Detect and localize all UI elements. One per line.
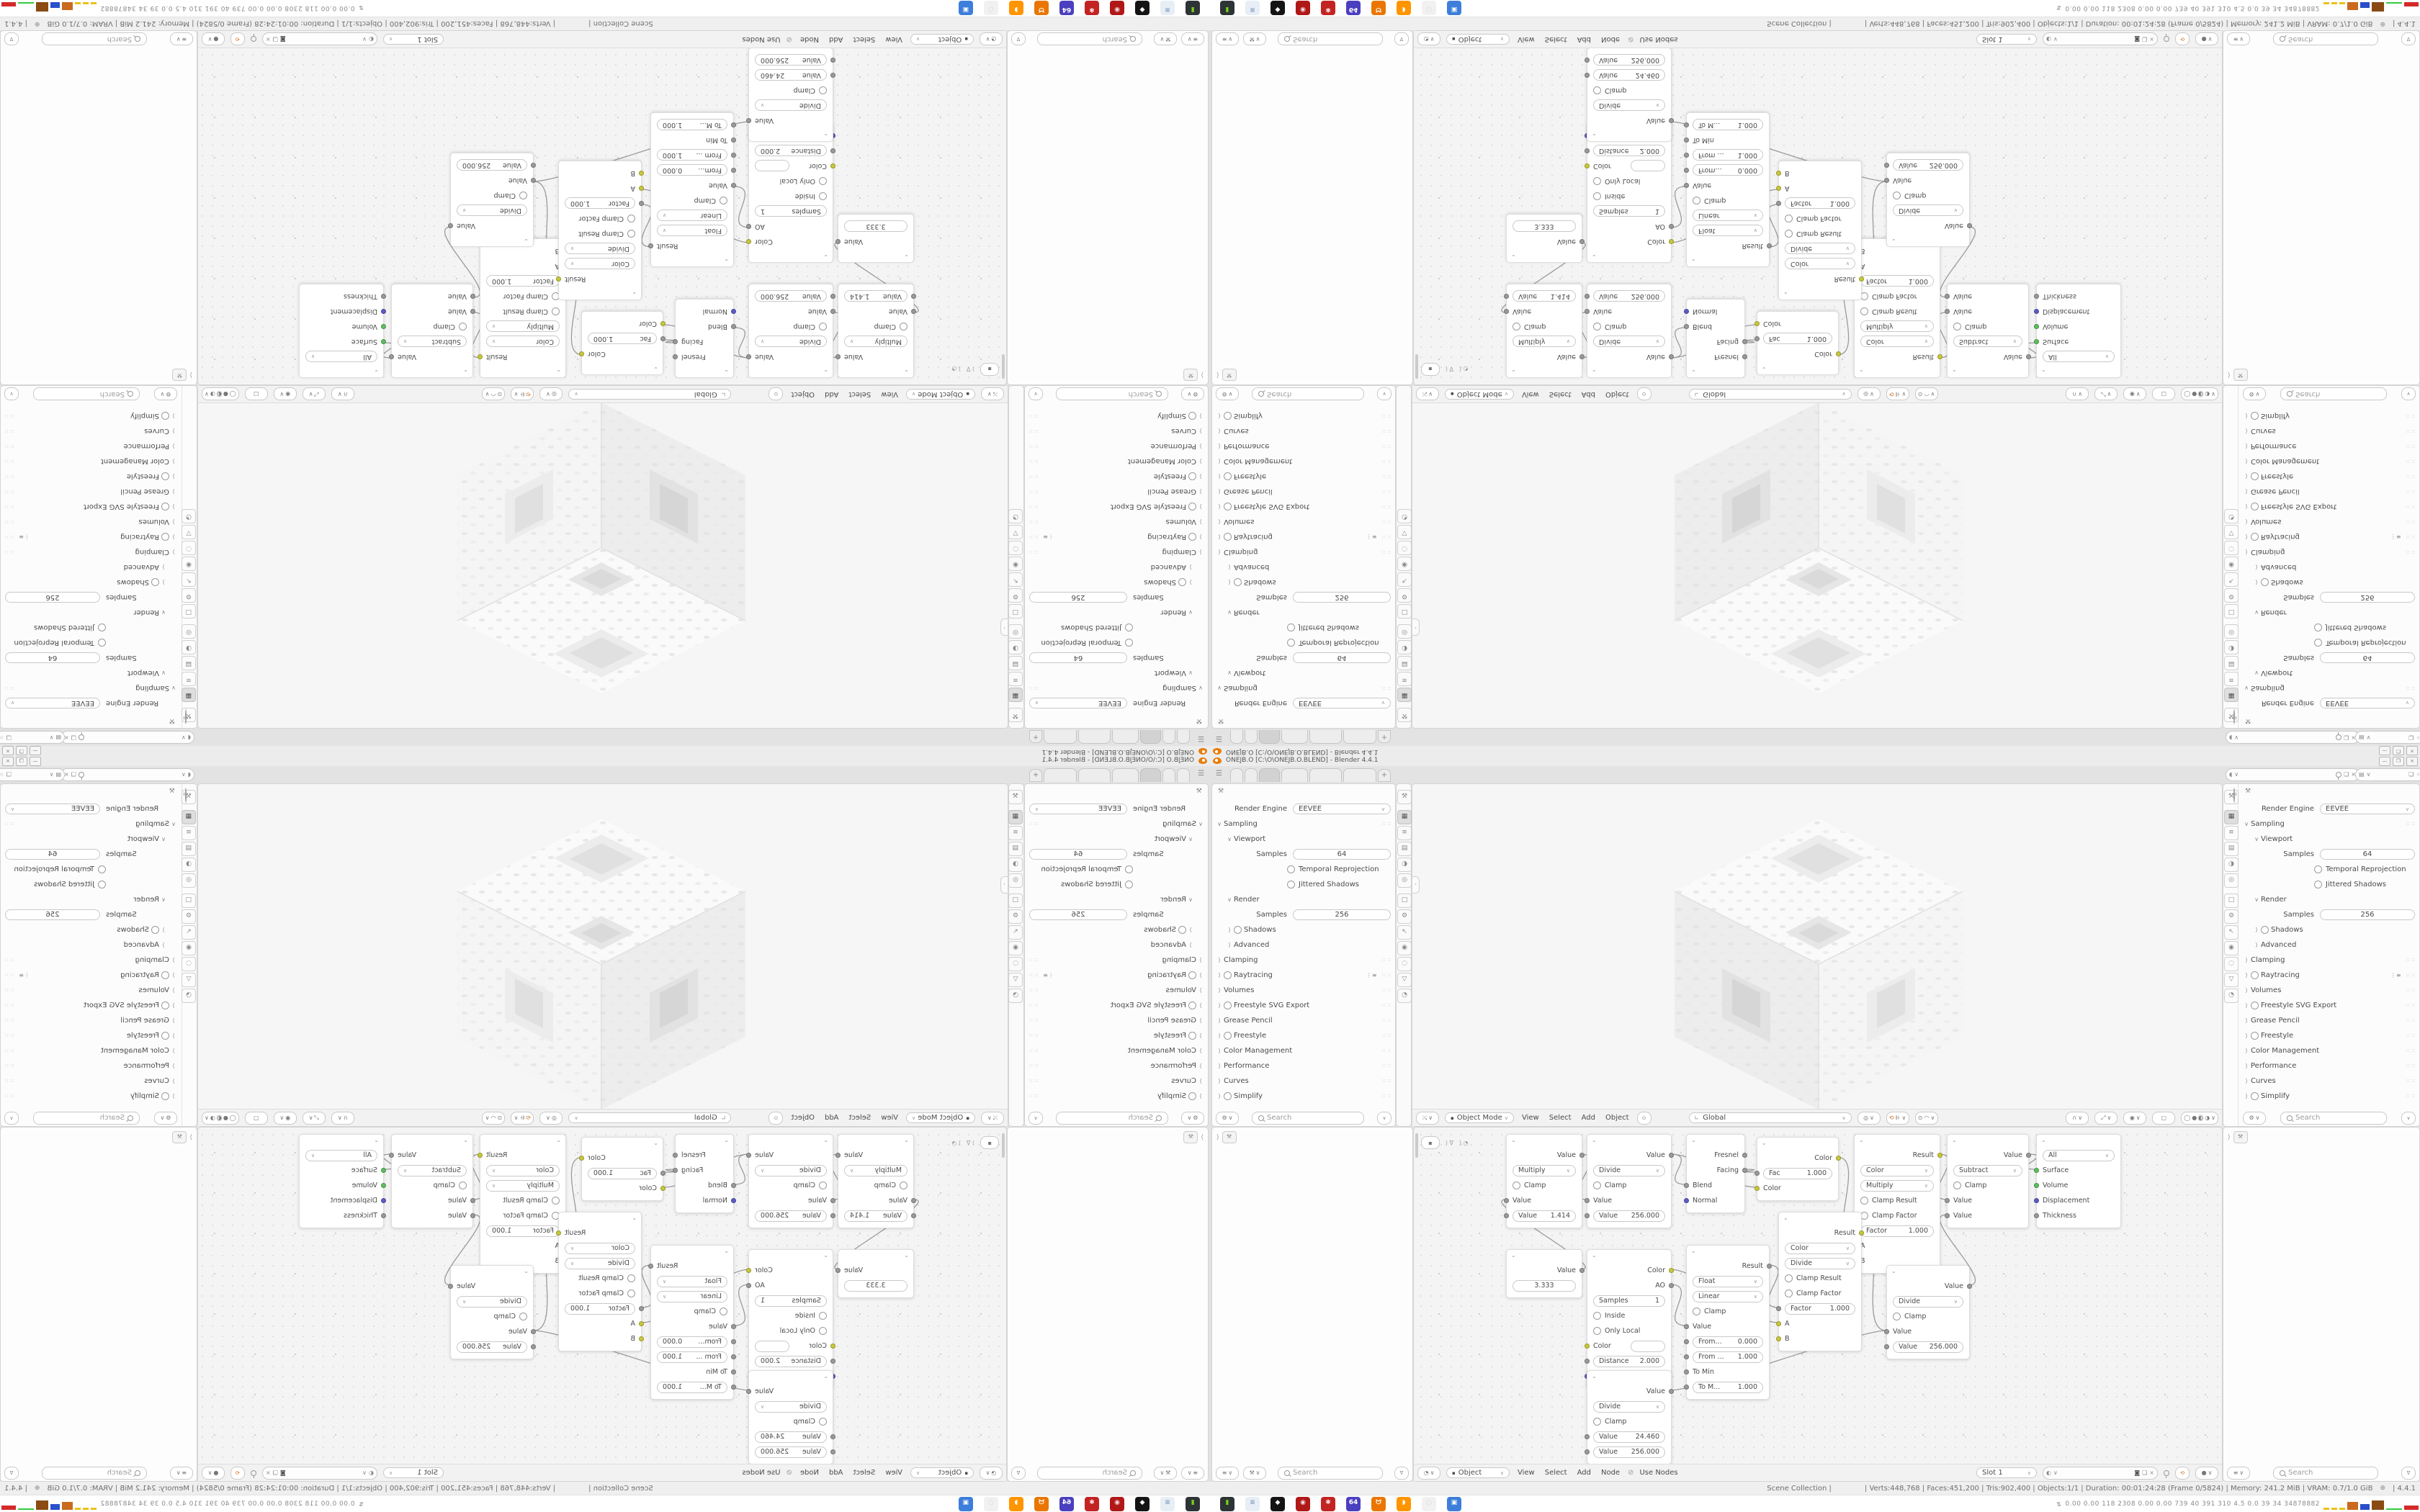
value-field-samples[interactable]: 256 [2320,909,2415,920]
checkbox[interactable] [627,1290,635,1297]
select-subtract[interactable]: Subtract∨ [398,336,467,348]
checkbox[interactable] [459,1182,467,1189]
pin-icon[interactable] [79,772,84,778]
node-map-range[interactable]: ⌄ResultFloat∨Linear∨ClampValueFrom...0.0… [1686,1245,1770,1400]
prop-row-performance[interactable]: ⟩Performance⁙⁙ [1212,438,1392,454]
shading-mode-cluster[interactable]: ◯●◐◑∨ [2181,388,2218,401]
select-all[interactable]: All∨ [2043,351,2115,363]
properties-tab-tool-icon[interactable]: ⚒ [181,708,196,722]
properties-tab-world-icon[interactable]: ◎ [1397,624,1412,639]
display-mode-button[interactable]: ⚒∨ [1154,33,1177,46]
number-field-from-[interactable]: From...0.000 [1693,165,1763,176]
properties-tab-particles-icon[interactable]: ↖ [1008,925,1023,940]
prop-row-color-management[interactable]: ⟩Color Management⁙⁙ [2239,454,2416,469]
checkbox[interactable] [1224,971,1232,979]
prop-row-raytracing[interactable]: ⟩Raytracing⋮≡⁙⁙ [2239,968,2416,983]
properties-tab-render-icon[interactable]: ▦ [2224,810,2238,824]
taskbar-icon-inkscape[interactable]: ◆ [1270,1497,1285,1511]
node-math-divide-3[interactable]: ⌄ValueDivide∨ClampValue24.460Value256.00… [1587,48,1672,142]
select-divide[interactable]: Divide∨ [1593,1165,1665,1176]
node-math-subtract[interactable]: ⌄ValueSubtract∨ClampValueValue [391,1134,473,1228]
prop-row-grease-pencil[interactable]: ⟩Grease Pencil⁙⁙ [1028,484,1208,499]
checkbox[interactable] [1287,624,1295,631]
prop-row-color-management[interactable]: ⟩Color Management⁙⁙ [1028,454,1208,469]
properties-tab-material-icon[interactable]: ◔ [1397,989,1412,1003]
prop-row-raytracing[interactable]: ⟩Raytracing⋮≡⁙⁙ [1212,529,1392,544]
prop-row-curves[interactable]: ⟩Curves⁙⁙ [1212,423,1392,438]
menu-hamburger-icon[interactable]: ☰ [1196,770,1204,778]
checkbox[interactable] [98,881,106,888]
prop-row-samples[interactable]: Samples64 [2239,847,2416,862]
properties-tab-constraints-icon[interactable]: ◌ [1397,541,1412,555]
prop-row-sampling[interactable]: ∨Sampling⁙⁙ [1028,816,1208,832]
prop-row-sampling[interactable]: ∨Sampling⁙⁙ [2239,816,2416,832]
node-value[interactable]: ⌄Value3.333 [1506,1249,1582,1298]
checkbox[interactable] [1593,177,1601,185]
collapse-button[interactable]: ∨ [1028,1112,1043,1125]
node-invert-color[interactable]: ⌄ColorFac1.000Color [581,1137,663,1201]
number-field-value[interactable]: Value24.460 [1593,1431,1665,1443]
menu-node[interactable]: Node [798,35,821,43]
slot-dropdown[interactable]: Slot 1∨ [1976,34,2037,45]
snap-button[interactable]: ⟲⊪∨ [511,388,534,401]
prop-row-freestyle[interactable]: ⟩Freestyle⁙⁙ [1212,469,1392,484]
prop-row-sampling[interactable]: ∨Sampling⁙⁙ [1212,816,1392,832]
node-layer-weight[interactable]: ⌄FresnelFacingBlendNormal [675,299,734,378]
properties-tab-scene-icon[interactable]: ◑ [2224,640,2238,654]
shader-node-editor[interactable]: ▪ ⟩ ∇⟩ ◔ ⌄ValueMultiply∨ClampValueValue1… [197,30,1007,385]
workspace-tab-3[interactable] [1140,730,1161,744]
prop-row-freestyle[interactable]: ⟩Freestyle⁙⁙ [1028,1028,1208,1043]
node-material-output[interactable]: ⌄All∨SurfaceVolumeDisplacementThickness [299,284,384,378]
checkbox[interactable] [900,323,907,330]
node-math-divide-3[interactable]: ⌄ValueDivide∨ClampValue24.460Value256.00… [748,1370,833,1464]
prop-row-shadows[interactable]: ⟩Shadows [1028,575,1208,590]
editor-type-button[interactable]: ⚙∨ [1216,1112,1239,1125]
properties-tab-output-icon[interactable]: ≡ [1397,826,1412,840]
snap-button[interactable]: ⟲⊪∨ [1886,1112,1909,1125]
prop-row-freestyle-svg-export[interactable]: ⟩Freestyle SVG Export⁙⁙ [1212,998,1392,1013]
prop-row-freestyle[interactable]: ⟩Freestyle⁙⁙ [2239,1028,2416,1043]
node-mix-multiply[interactable]: ⌄ResultColor∨Multiply∨Clamp ResultClamp … [480,1134,566,1274]
checkbox[interactable] [819,1312,827,1320]
scene-selector[interactable]: ◖∨ ❏ × [60,731,194,744]
menu-view[interactable]: View [1515,1469,1537,1477]
select-linear[interactable]: Linear∨ [1693,1291,1763,1302]
sidebar-toggle-tab[interactable]: ‹ [1412,618,1420,636]
taskbar-icon-terminal[interactable]: ▮ [1220,1,1234,15]
prop-row-simplify[interactable]: ⟩Simplify⁙⁙ [1028,408,1208,423]
delete-icon[interactable]: × [0,771,4,778]
prop-row-jittered-shadows[interactable]: Jittered Shadows [1028,877,1208,892]
properties-tab-physics-icon[interactable]: ◉ [1397,557,1412,571]
search-input[interactable]: Search [1278,1467,1383,1480]
number-field-factor[interactable]: Factor1.000 [1860,1225,1934,1237]
prop-row-clamping[interactable]: ⟩Clamping⁙⁙ [1212,544,1392,559]
proportional-edit-button[interactable]: ⊙ [768,1112,783,1125]
prop-row-volumes[interactable]: ⟩Volumes⁙⁙ [1212,514,1392,529]
properties-tab-render-icon[interactable]: ▦ [181,810,196,824]
prop-row-simplify[interactable]: ⟩Simplify⁙⁙ [1028,1089,1208,1104]
prop-row-samples[interactable]: Samples64 [2239,650,2416,665]
prop-row-render[interactable]: ∨Render [4,605,181,620]
checkbox[interactable] [1593,192,1601,200]
workspace-tab-5[interactable] [1309,730,1342,744]
prop-row-temporal-reprojection[interactable]: Temporal Reprojection [2239,635,2416,650]
properties-tab-output-icon[interactable]: ≡ [1008,672,1023,686]
minimize-button[interactable]: — [30,746,41,755]
menu-select[interactable]: Select [846,1114,873,1122]
checkbox[interactable] [2314,881,2322,888]
number-field-to-m-[interactable]: To M...1.000 [1693,1382,1763,1393]
prop-row-curves[interactable]: ⟩Curves⁙⁙ [2239,1074,2416,1089]
taskbar-icon-darktable[interactable]: ◉ [1110,1,1124,15]
prop-row-freestyle-svg-export[interactable]: ⟩Freestyle SVG Export⁙⁙ [1212,499,1392,514]
checkbox[interactable] [1224,412,1232,420]
display-mode-button[interactable]: ⚒∨ [1243,33,1266,46]
workspace-tab-6[interactable] [1343,768,1376,782]
node-math-divide[interactable]: ⌄ValueDivide∨ClampValueValue256.000 [748,1134,833,1228]
search-input[interactable]: Search [2280,1112,2387,1125]
prop-row-volumes[interactable]: ⟩Volumes⁙⁙ [4,983,181,998]
gizmo-dropdown[interactable]: ⤢∨ [302,388,326,401]
number-field-value[interactable]: Value256.000 [1593,1210,1665,1222]
menu-select[interactable]: Select [1547,1114,1574,1122]
node-math-divide-2[interactable]: ⌄ValueDivide∨ClampValueValue256.000 [1886,1265,1970,1359]
copy-icon[interactable]: ❏ [273,36,278,43]
node-math-divide-2[interactable]: ⌄ValueDivide∨ClampValueValue256.000 [450,1265,534,1359]
prop-row-curves[interactable]: ⟩Curves⁙⁙ [2239,423,2416,438]
snap-toggle[interactable]: ⟲ [2175,33,2190,46]
prop-row-samples[interactable]: Samples64 [1028,650,1208,665]
taskbar-icon-monitor[interactable]: ▣ [1447,1497,1461,1511]
prop-row-render[interactable]: ∨Render [2239,605,2416,620]
node-math-subtract[interactable]: ⌄ValueSubtract∨ClampValueValue [1947,1134,2029,1228]
checkbox[interactable] [1188,503,1196,510]
properties-tab-output-icon[interactable]: ≡ [181,826,196,840]
checkbox[interactable] [2261,578,2269,586]
select-color[interactable]: Color∨ [1785,1243,1855,1254]
prop-row-render-engine[interactable]: Render EngineEEVEE∨ [1212,696,1392,711]
node-math-divide-3[interactable]: ⌄ValueDivide∨ClampValue24.460Value256.00… [748,48,833,142]
use-nodes-check-icon[interactable]: ⊘ [1628,1470,1633,1477]
workspace-tab-1[interactable] [1230,730,1243,744]
shader-context-dropdown[interactable]: ▪ Object∨ [910,34,974,45]
number-field-distance[interactable]: Distance2.000 [755,1356,827,1367]
shader-node-editor[interactable]: ▪ ⟩ ∇⟩ ◔ ⌄ValueMultiply∨ClampValueValue1… [1413,1127,2223,1482]
value-field-samples[interactable]: 256 [1293,592,1391,603]
properties-tab-physics-icon[interactable]: ◉ [1008,941,1023,955]
scene-name-field[interactable] [86,733,179,742]
properties-tab-scene-icon[interactable]: ◑ [1397,640,1412,654]
transform-orientation-dropdown[interactable]: ∟ Global∨ [1689,389,1852,400]
number-field-value[interactable]: Value256.000 [755,55,827,66]
menu-select[interactable]: Select [846,390,873,398]
view-layer-selector[interactable]: ▤∨ ❏ × [2355,731,2420,744]
select-multiply[interactable]: Multiply∨ [1860,321,1934,333]
menu-view[interactable]: View [1520,390,1541,398]
search-input[interactable]: Search [33,388,140,401]
workspace-tab-4[interactable] [1281,768,1308,782]
overlays-dropdown[interactable]: ◉∨ [274,1112,297,1125]
magnet-snap-toggle[interactable]: ∩∨ [331,1112,354,1125]
editor-type-button[interactable]: ≡∨ [1216,1467,1239,1480]
properties-tab-object-icon[interactable]: □ [1397,894,1412,908]
number-field-value[interactable]: Value256.000 [1593,1446,1665,1458]
number-field-value[interactable]: Value256.000 [1893,160,1963,171]
menu-view[interactable]: View [879,390,900,398]
taskbar-icon-firefox[interactable]: ◗ [1009,1,1023,15]
menu-node[interactable]: Node [1599,1469,1622,1477]
properties-tab-tool-icon[interactable]: ⚒ [1397,790,1412,804]
search-input[interactable]: Search [2273,1467,2378,1480]
shader-context-dropdown[interactable]: ▪ Object∨ [1446,1467,1510,1478]
checkbox[interactable] [98,865,106,873]
checkbox[interactable] [2251,503,2259,510]
properties-tab-modifiers-icon[interactable]: ⚙ [1397,909,1412,924]
properties-tab-render-icon[interactable]: ▦ [1008,810,1023,824]
node-layer-weight[interactable]: ⌄FresnelFacingBlendNormal [1686,299,1745,378]
node-math-multiply[interactable]: ⌄ValueMultiply∨ClampValueValue1.414 [1506,1134,1582,1228]
number-field-value[interactable]: Value256.000 [755,291,827,302]
properties-tab-world-icon[interactable]: ◎ [1008,873,1023,888]
display-mode-button[interactable]: ⚒∨ [1154,1467,1177,1480]
checkbox[interactable] [2251,1092,2259,1100]
properties-tab-object-icon[interactable]: □ [181,894,196,908]
taskbar-icon-inkscape[interactable]: ◆ [1135,1,1149,15]
taskbar-icon-red-gear[interactable]: ✱ [1321,1,1335,15]
snap-button[interactable]: ⟲⊪∨ [511,1112,534,1125]
workspace-tab-4[interactable] [1112,730,1139,744]
workspace-tab-3[interactable] [1140,768,1161,782]
node-ambient-occlusion[interactable]: ⌄ColorAOSamples1InsideOnly LocalColorDis… [748,123,833,263]
checkbox[interactable] [1188,1092,1196,1100]
prop-row-render-engine[interactable]: Render EngineEEVEE∨ [2239,801,2416,816]
properties-tab-render-icon[interactable]: ▦ [1008,688,1023,702]
color-field[interactable] [755,161,789,172]
select-linear[interactable]: Linear∨ [657,210,727,222]
prop-row-freestyle[interactable]: ⟩Freestyle⁙⁙ [4,469,181,484]
select-color[interactable]: Color∨ [486,1165,560,1176]
checkbox[interactable] [161,1002,169,1009]
fake-user-shield-icon[interactable]: ◙ [280,1470,286,1477]
node-ambient-occlusion[interactable]: ⌄ColorAOSamples1InsideOnly LocalColorDis… [1587,1249,1672,1389]
unlink-icon[interactable]: × [2149,1470,2154,1477]
prop-row-advanced[interactable]: ⟩Advanced [1212,559,1392,575]
prop-row-color-management[interactable]: ⟩Color Management⁙⁙ [1212,1043,1392,1058]
prop-row-volumes[interactable]: ⟩Volumes⁙⁙ [1028,514,1208,529]
pivot-point-button[interactable]: ◎∨ [1857,388,1881,401]
copy-icon[interactable]: ❏ [2344,771,2349,778]
checkbox[interactable] [1224,472,1232,480]
properties-tab-object-icon[interactable]: □ [1008,604,1023,618]
number-field-value[interactable]: Value1.414 [1512,291,1576,302]
workspace-tab-5[interactable] [1078,730,1111,744]
editor-type-button[interactable]: ⤯∨ [1416,1112,1439,1125]
number-field-factor[interactable]: Factor1.000 [565,198,635,210]
number-field-samples[interactable]: Samples1 [755,206,827,217]
prop-row-volumes[interactable]: ⟩Volumes⁙⁙ [1028,983,1208,998]
editor-type-button[interactable]: ◔∨ [1417,33,1440,46]
taskbar-icon-floppy-64[interactable]: 64 [1346,1497,1361,1511]
prop-row-curves[interactable]: ⟩Curves⁙⁙ [4,1074,181,1089]
use-nodes-label[interactable]: Use Nodes [742,35,780,43]
expand-arrow-icon[interactable]: ⟩ [1216,372,1219,379]
select-subtract[interactable]: Subtract∨ [1953,336,2022,348]
pin-icon[interactable] [79,734,84,740]
prop-row-advanced[interactable]: ⟩Advanced [1028,937,1208,953]
checkbox[interactable] [819,1182,827,1189]
menu-hamburger-icon[interactable]: ☰ [1216,770,1224,778]
number-field-value[interactable]: Value24.460 [755,70,827,81]
number-field-factor[interactable]: Factor1.000 [1785,1303,1855,1315]
checkbox[interactable] [1953,1182,1961,1189]
properties-tab-data-icon[interactable]: ▽ [2224,525,2238,539]
checkbox[interactable] [1593,86,1601,94]
properties-tab-modifiers-icon[interactable]: ⚙ [2224,909,2238,924]
number-field-value[interactable]: Value256.000 [755,1446,827,1458]
node-math-divide-3[interactable]: ⌄ValueDivide∨ClampValue24.460Value256.00… [1587,1370,1672,1464]
properties-tab-object-icon[interactable]: □ [2224,894,2238,908]
editor-type-button[interactable]: ⤯∨ [981,388,1004,401]
checkbox[interactable] [1512,1182,1520,1189]
taskbar-icon-ghost[interactable]: ○ [1422,1497,1436,1511]
prop-row-temporal-reprojection[interactable]: Temporal Reprojection [1028,635,1208,650]
prop-row-samples[interactable]: Samples256 [4,590,181,605]
checkbox[interactable] [151,926,159,934]
snap-button[interactable]: ⟲⊪∨ [1886,388,1909,401]
taskbar-icon-terminal[interactable]: ▮ [1186,1497,1200,1511]
prop-row-samples[interactable]: Samples64 [1028,847,1208,862]
prop-row-grease-pencil[interactable]: ⟩Grease Pencil⁙⁙ [2239,484,2416,499]
search-input[interactable]: Search [1278,33,1383,46]
select-divide[interactable]: Divide∨ [1785,243,1855,255]
select-divide[interactable]: Divide∨ [1593,1401,1665,1413]
checkbox[interactable] [627,215,635,222]
viewport-3d[interactable]: ‹ [197,783,1008,1127]
prop-row-shadows[interactable]: ⟩Shadows [1212,575,1392,590]
taskbar-icon-firefox[interactable]: ◗ [1397,1497,1411,1511]
value-field-samples[interactable]: 256 [1029,592,1127,603]
value-field-samples[interactable]: 256 [5,909,100,920]
workspace-tab-4[interactable] [1281,730,1308,744]
prop-row-simplify[interactable]: ⟩Simplify⁙⁙ [4,408,181,423]
number-field-value[interactable]: Value24.460 [1593,70,1665,81]
snap-target-dropdown[interactable]: ●∨ [202,1467,225,1480]
expand-arrow-icon[interactable]: ⟩ [2228,372,2231,379]
mode-dropdown[interactable]: ▪ Object Mode∨ [906,1112,975,1123]
value-field[interactable]: 3.333 [1512,1280,1576,1292]
menu-node[interactable]: Node [1599,35,1622,43]
value-field-samples[interactable]: 64 [1293,849,1391,860]
prop-row-raytracing[interactable]: ⟩Raytracing⋮≡⁙⁙ [4,529,181,544]
properties-tab-material-icon[interactable]: ◔ [181,509,196,523]
use-nodes-label[interactable]: Use Nodes [1639,35,1677,43]
number-field-from-[interactable]: From...0.000 [657,1336,727,1348]
node-mix-multiply[interactable]: ⌄ResultColor∨Multiply∨Clamp ResultClamp … [480,238,566,378]
prop-row-performance[interactable]: ⟩Performance⁙⁙ [4,1058,181,1074]
material-name-field[interactable] [288,1469,361,1477]
checkbox[interactable] [1234,926,1242,934]
checkbox[interactable] [900,1182,907,1189]
add-workspace-button[interactable]: + [1378,730,1391,743]
prop-row-viewport[interactable]: ∨Viewport [2239,665,2416,680]
menu-select[interactable]: Select [1547,390,1574,398]
workspace-tab-6[interactable] [1044,730,1077,744]
checkbox[interactable] [1188,412,1196,420]
checkbox[interactable] [1287,881,1295,888]
add-workspace-button[interactable]: + [1378,769,1391,782]
taskbar-icon-firefox[interactable]: ◗ [1397,1,1411,15]
workspace-tab-1[interactable] [1177,768,1190,782]
checkbox[interactable] [1125,624,1133,631]
properties-tab-object-icon[interactable]: □ [2224,604,2238,618]
properties-tab-physics-icon[interactable]: ◉ [2224,941,2238,955]
prop-row-grease-pencil[interactable]: ⟩Grease Pencil⁙⁙ [4,484,181,499]
search-input[interactable]: Search [2273,33,2378,46]
prop-row-clamping[interactable]: ⟩Clamping⁙⁙ [2239,953,2416,968]
pin-icon[interactable] [251,1470,256,1476]
properties-tab-data-icon[interactable]: ▽ [1008,973,1023,987]
editor-type-button[interactable]: ≡∨ [170,1467,193,1480]
render-engine-dropdown[interactable]: EEVEE∨ [2320,804,2415,814]
number-field-value[interactable]: Value1.414 [1512,1210,1576,1222]
copy-icon[interactable]: ❏ [2408,771,2414,778]
prop-row-jittered-shadows[interactable]: Jittered Shadows [4,877,181,892]
search-input[interactable]: Search [1037,1467,1142,1480]
prop-row-viewport[interactable]: ∨Viewport [1028,665,1208,680]
menu-select[interactable]: Select [1543,1469,1569,1477]
minimize-button[interactable]: — [2379,757,2390,766]
properties-tab-tool-icon[interactable]: ⚒ [181,790,196,804]
editor-type-button[interactable]: ⚙∨ [1216,388,1239,401]
properties-tab-physics-icon[interactable]: ◉ [181,557,196,571]
filter-button[interactable]: ∇ [2401,1467,2416,1480]
checkbox[interactable] [1512,323,1520,330]
checkbox[interactable] [720,197,727,204]
taskbar-icon-blender[interactable]: ᗢ [1371,1,1386,15]
taskbar-icon-ghost[interactable]: ○ [984,1,998,15]
shader-node-editor[interactable]: ▪ ⟩ ∇⟩ ◔ ⌄ValueMultiply∨ClampValueValue1… [197,1127,1007,1482]
properties-tab-scene-icon[interactable]: ◑ [181,640,196,654]
prop-row-simplify[interactable]: ⟩Simplify⁙⁙ [4,1089,181,1104]
node-math-divide[interactable]: ⌄ValueDivide∨ClampValueValue256.000 [748,284,833,378]
editor-type-button[interactable]: ⤯∨ [1416,388,1439,401]
prop-row-jittered-shadows[interactable]: Jittered Shadows [2239,620,2416,635]
taskbar-icon-darktable[interactable]: ◉ [1296,1,1310,15]
editor-type-button[interactable]: ≡∨ [1216,33,1239,46]
properties-tab-particles-icon[interactable]: ↖ [1008,572,1023,587]
properties-tab-particles-icon[interactable]: ↖ [1397,572,1412,587]
properties-tab-object-icon[interactable]: □ [1397,604,1412,618]
prop-row-render-engine[interactable]: Render EngineEEVEE∨ [4,801,181,816]
prop-row-color-management[interactable]: ⟩Color Management⁙⁙ [1028,1043,1208,1058]
value-field-samples[interactable]: 64 [5,652,100,663]
gizmo-dropdown[interactable]: ⤢∨ [2094,388,2117,401]
close-button[interactable]: × [2406,746,2418,755]
prop-row-jittered-shadows[interactable]: Jittered Shadows [1212,620,1392,635]
checkbox[interactable] [161,971,169,979]
number-field-factor[interactable]: Factor1.000 [1860,276,1934,287]
prop-row-grease-pencil[interactable]: ⟩Grease Pencil⁙⁙ [4,1013,181,1028]
taskbar-icon-notes[interactable]: ≡ [1245,1,1260,15]
checkbox[interactable] [1860,1197,1868,1205]
checkbox[interactable] [552,307,560,315]
taskbar-icon-red-gear[interactable]: ✱ [1085,1497,1099,1511]
value-field-samples[interactable]: 64 [1029,849,1127,860]
properties-tab-material-icon[interactable]: ◔ [2224,989,2238,1003]
taskbar-icon-firefox[interactable]: ◗ [1009,1497,1023,1511]
